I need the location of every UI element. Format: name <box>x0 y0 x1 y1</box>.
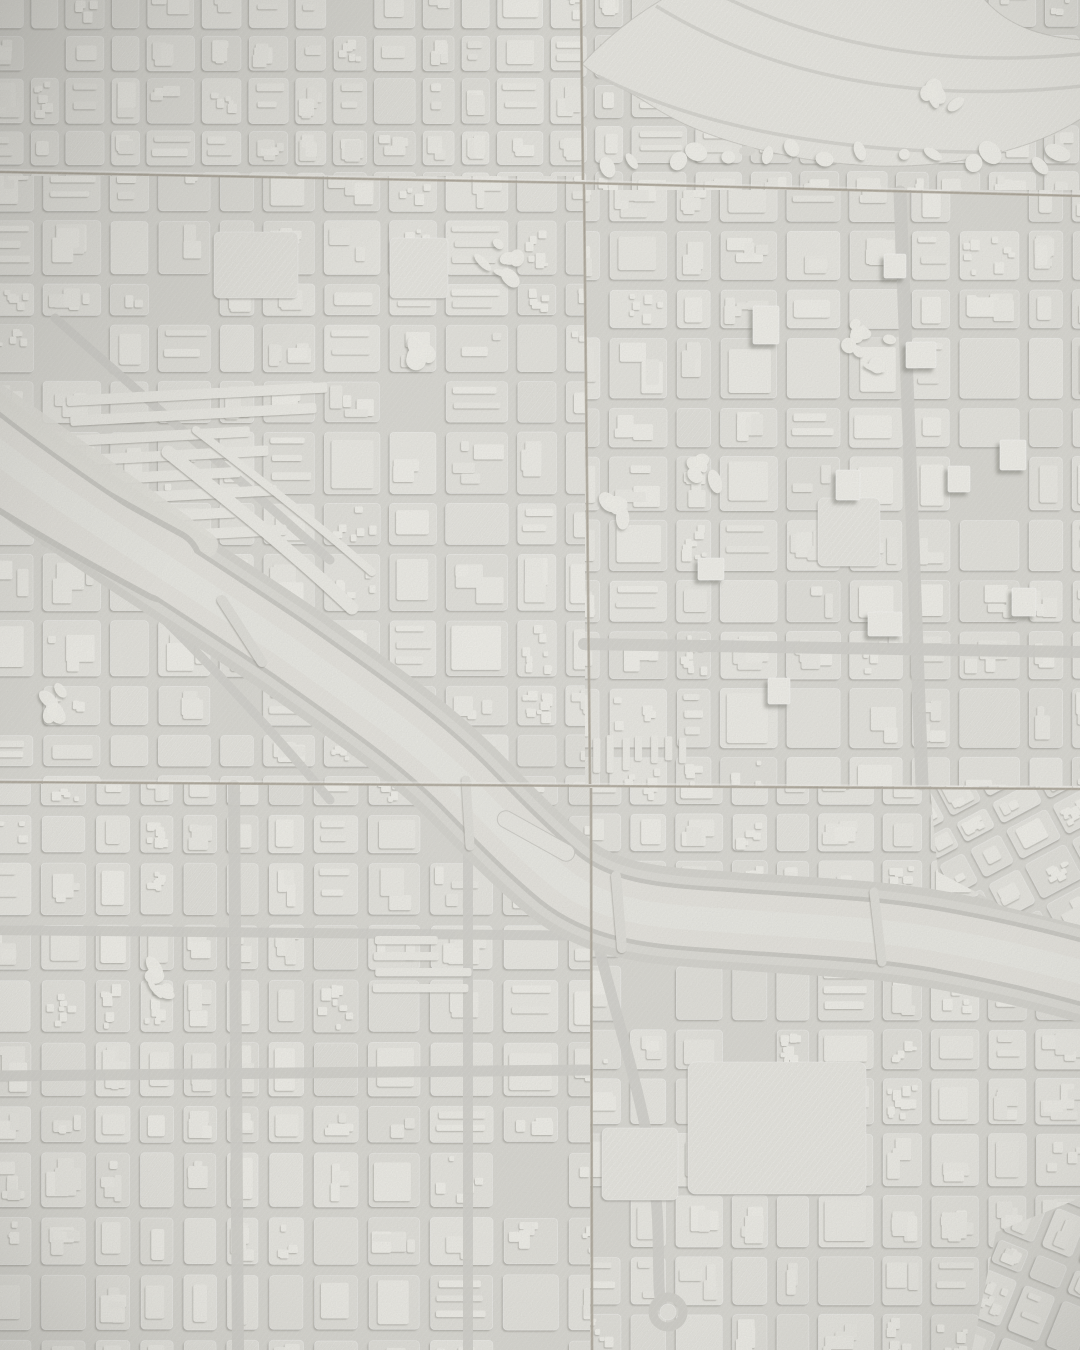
corner-shade <box>0 0 1080 1350</box>
printed-city-map-photo: Photograph of a white 3D-printed city st… <box>0 0 1080 1350</box>
city-map-model-scene <box>0 0 1080 1350</box>
photo-effects <box>0 0 1080 1350</box>
